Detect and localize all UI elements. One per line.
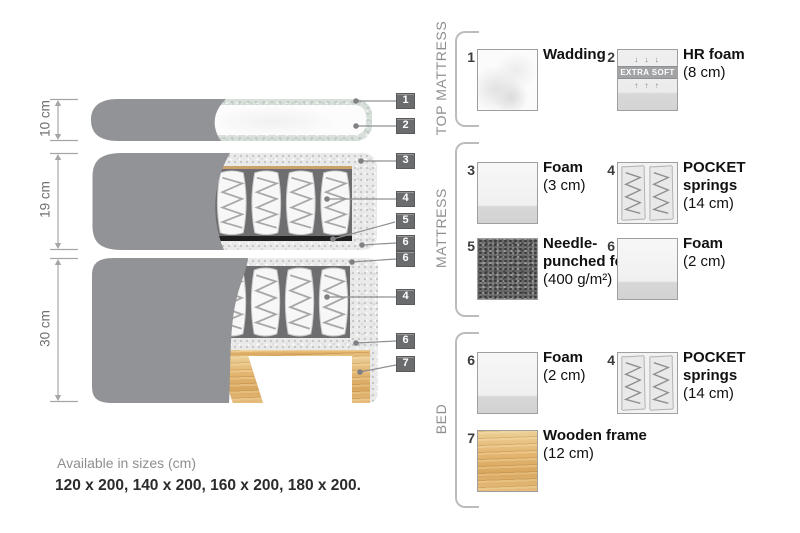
wooden-leg-right bbox=[352, 356, 370, 403]
foam-swatch bbox=[477, 162, 538, 224]
callout-box-6b: 6 bbox=[396, 251, 415, 267]
legend-item-pocket-springs: 4 POCKET springs (14 cm) bbox=[617, 162, 678, 224]
pocket-springs-icon bbox=[618, 163, 677, 223]
legend-text: POCKET springs (14 cm) bbox=[683, 159, 779, 213]
callout-box-6c: 6 bbox=[396, 333, 415, 349]
legend-title: HR foam bbox=[683, 46, 779, 64]
legend-title: POCKET springs bbox=[683, 159, 779, 195]
top-mattress-cutaway bbox=[212, 99, 372, 141]
legend-number: 6 bbox=[601, 238, 615, 254]
pocket-springs-swatch bbox=[617, 162, 678, 224]
legend-number: 2 bbox=[601, 49, 615, 65]
top-mattress-fabric bbox=[91, 99, 226, 141]
mattress-cutaway bbox=[214, 153, 377, 250]
legend-title: Wooden frame bbox=[543, 427, 693, 445]
needle-punched-felt-layer bbox=[214, 236, 352, 241]
foam-swatch bbox=[617, 238, 678, 300]
legend-subtitle: (12 cm) bbox=[543, 445, 693, 463]
legend-title: POCKET springs bbox=[683, 349, 779, 385]
legend-item-foam-2: 6 Foam (2 cm) bbox=[617, 238, 678, 300]
dimension-label-top-mattress: 10 cm bbox=[38, 89, 53, 149]
pocket-springs-illustration bbox=[214, 169, 352, 237]
mattress-springs-zone bbox=[214, 169, 352, 237]
legend-title: Foam bbox=[683, 235, 779, 253]
legend-subtitle: (2 cm) bbox=[683, 253, 779, 271]
extra-soft-badge: EXTRA SOFT bbox=[617, 66, 678, 79]
legend-text: HR foam (8 cm) bbox=[683, 46, 779, 82]
hr-foam-core bbox=[212, 105, 366, 135]
section-title-bed: BED bbox=[433, 329, 449, 509]
callout-box-2: 2 bbox=[396, 118, 415, 134]
legend-text: Wooden frame (12 cm) bbox=[543, 427, 693, 463]
callout-box-4b: 4 bbox=[396, 289, 415, 305]
arrows-up-icon: ↑ ↑ ↑ bbox=[634, 81, 660, 90]
bed-cutaway bbox=[214, 258, 378, 403]
legend-subtitle: (8 cm) bbox=[683, 64, 779, 82]
callout-box-4: 4 bbox=[396, 191, 415, 207]
callout-box-3: 3 bbox=[396, 153, 415, 169]
legend-item-foam-3: 3 Foam (3 cm) bbox=[477, 162, 538, 224]
wooden-leg-left bbox=[218, 356, 263, 403]
callout-box-1: 1 bbox=[396, 93, 415, 109]
legend-number: 6 bbox=[461, 352, 475, 368]
legend-number: 4 bbox=[601, 352, 615, 368]
bed-sidewall bbox=[370, 350, 378, 403]
bed-springs-zone bbox=[214, 266, 350, 338]
legend-item-bed-pocket-springs: 4 POCKET springs (14 cm) bbox=[617, 352, 678, 414]
bed-side-foam bbox=[350, 258, 378, 350]
callout-box-6a: 6 bbox=[396, 235, 415, 251]
legend-number: 1 bbox=[461, 49, 475, 65]
section-bracket-top-mattress bbox=[455, 31, 479, 127]
sizes-caption: Available in sizes (cm) bbox=[57, 455, 196, 471]
arrows-down-icon: ↓ ↓ ↓ bbox=[634, 55, 660, 64]
legend-number: 5 bbox=[461, 238, 475, 254]
legend-text: POCKET springs (14 cm) bbox=[683, 349, 779, 403]
bed-construction-infographic: 10 cm 19 cm 30 cm 1 2 3 4 5 6 6 4 6 7 TO… bbox=[0, 0, 800, 533]
section-title-mattress: MATTRESS bbox=[433, 138, 449, 318]
legend-number: 7 bbox=[461, 430, 475, 446]
pocket-springs-swatch bbox=[617, 352, 678, 414]
legend-subtitle: (14 cm) bbox=[683, 385, 779, 403]
pocket-springs-illustration bbox=[214, 266, 350, 338]
felt-swatch bbox=[477, 238, 538, 300]
foam-swatch bbox=[477, 352, 538, 414]
dimension-label-mattress: 19 cm bbox=[38, 170, 53, 230]
legend-item-hr-foam: 2 ↓ ↓ ↓ EXTRA SOFT ↑ ↑ ↑ HR foam (8 cm) bbox=[617, 49, 678, 111]
callout-box-5: 5 bbox=[396, 213, 415, 229]
sizes-list: 120 x 200, 140 x 200, 160 x 200, 180 x 2… bbox=[55, 477, 361, 495]
mattress-fabric bbox=[93, 153, 231, 250]
dimension-arrowheads bbox=[55, 100, 61, 401]
legend-text: Foam (2 cm) bbox=[683, 235, 779, 271]
wooden-slat bbox=[218, 350, 374, 356]
legend-number: 3 bbox=[461, 162, 475, 178]
bed-bottom-foam-layer bbox=[214, 338, 350, 350]
wood-swatch bbox=[477, 430, 538, 492]
wadding-swatch bbox=[477, 49, 538, 111]
legend-number: 4 bbox=[601, 162, 615, 178]
legend-subtitle: (14 cm) bbox=[683, 195, 779, 213]
hr-foam-swatch: ↓ ↓ ↓ EXTRA SOFT ↑ ↑ ↑ bbox=[617, 49, 678, 111]
callout-box-7: 7 bbox=[396, 356, 415, 372]
legend-item-bed-foam: 6 Foam (2 cm) bbox=[477, 352, 538, 414]
legend-item-wadding: 1 Wadding bbox=[477, 49, 538, 111]
legend-item-wooden-frame: 7 Wooden frame (12 cm) bbox=[477, 430, 538, 492]
dimension-label-bed: 30 cm bbox=[38, 299, 53, 359]
legend-item-felt: 5 Needle-punched felt (400 g/m²) bbox=[477, 238, 538, 300]
pocket-springs-icon bbox=[618, 353, 677, 413]
dimension-lines bbox=[50, 100, 78, 402]
